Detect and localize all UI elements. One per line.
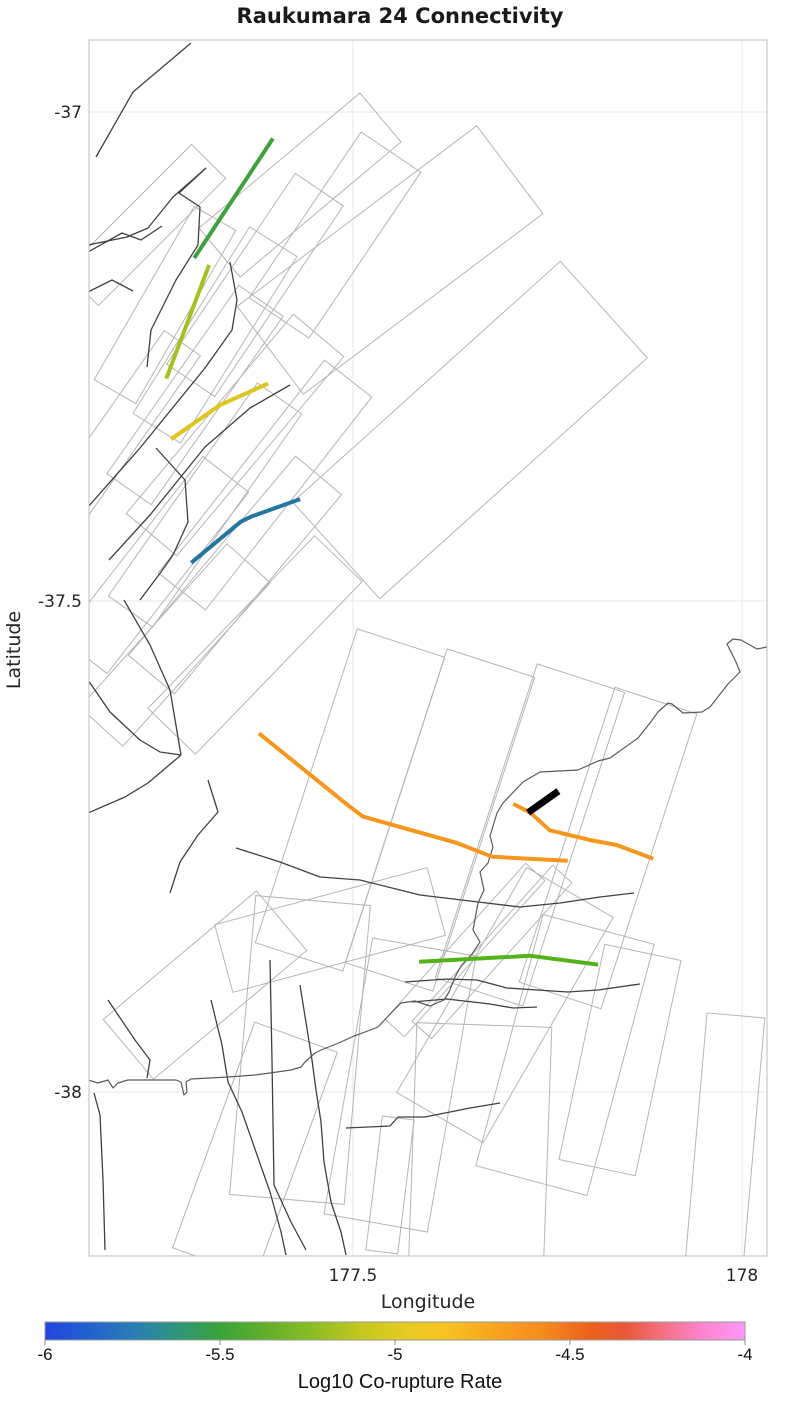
fault-patch (167, 173, 344, 396)
fault-traces (88, 43, 640, 1255)
grid-lines (89, 40, 767, 1256)
co-rupture-segment-2 (166, 265, 209, 379)
fault-patch (519, 687, 697, 1008)
y-tick--38: -38 (54, 1083, 82, 1103)
fault-trace (270, 960, 306, 1250)
fault-trace (96, 43, 191, 157)
fault-trace (88, 168, 206, 245)
colorbar-tick--5: -5 (387, 1345, 402, 1364)
fault-trace (109, 385, 290, 560)
fault-trace (88, 226, 162, 252)
target-fault-raukumara-24 (528, 791, 558, 813)
colorbar-tick--6: -6 (37, 1345, 52, 1364)
fault-trace (88, 280, 133, 292)
connectivity-figure: Raukumara 24 Connectivity -37 -37.5 -38 … (0, 0, 800, 1403)
fault-trace (147, 168, 206, 367)
colorbar-tick--4-5: -4.5 (555, 1345, 584, 1364)
coastline-path (88, 639, 767, 1095)
fault-patch (385, 863, 545, 1036)
fault-patch (103, 891, 306, 1079)
connectivity-map-canvas: Raukumara 24 Connectivity -37 -37.5 -38 … (0, 0, 800, 1403)
fault-patch (366, 1116, 414, 1254)
fault-patch (237, 126, 543, 394)
fault-trace (300, 985, 346, 1255)
co-rupture-segment-7 (419, 956, 598, 965)
fault-patch (126, 314, 344, 556)
colorbar-tick--5-5: -5.5 (205, 1345, 234, 1364)
x-axis-label: Longitude (381, 1291, 476, 1313)
fault-patch (199, 93, 401, 277)
fault-patch (255, 629, 444, 971)
fault-trace (346, 1103, 500, 1128)
fault-trace (88, 755, 181, 813)
fault-trace (88, 680, 181, 755)
fault-trace (108, 1000, 150, 1078)
co-rupture-segment-4 (191, 499, 300, 563)
x-tick-177-5: 177.5 (329, 1266, 378, 1286)
fault-patch (412, 865, 572, 1038)
fault-patch-outlines (50, 93, 765, 1278)
y-tick--37: -37 (54, 103, 82, 123)
y-tick--37-5: -37.5 (38, 592, 82, 612)
co-rupture-segments (166, 139, 653, 965)
y-axis-label: Latitude (3, 611, 25, 689)
fault-patch (50, 331, 201, 520)
x-tick-178: 178 (726, 1266, 758, 1286)
colorbar-label: Log10 Co-rupture Rate (298, 1371, 503, 1393)
plot-frame (89, 40, 767, 1256)
colorbar-tick--4: -4 (737, 1345, 752, 1364)
fault-trace (170, 780, 218, 893)
colorbar (45, 1322, 745, 1340)
fault-patch (685, 1013, 765, 1267)
coastline (88, 639, 767, 1095)
fault-patch (397, 867, 614, 1142)
chart-title: Raukumara 24 Connectivity (237, 4, 564, 28)
fault-trace (94, 1093, 105, 1250)
